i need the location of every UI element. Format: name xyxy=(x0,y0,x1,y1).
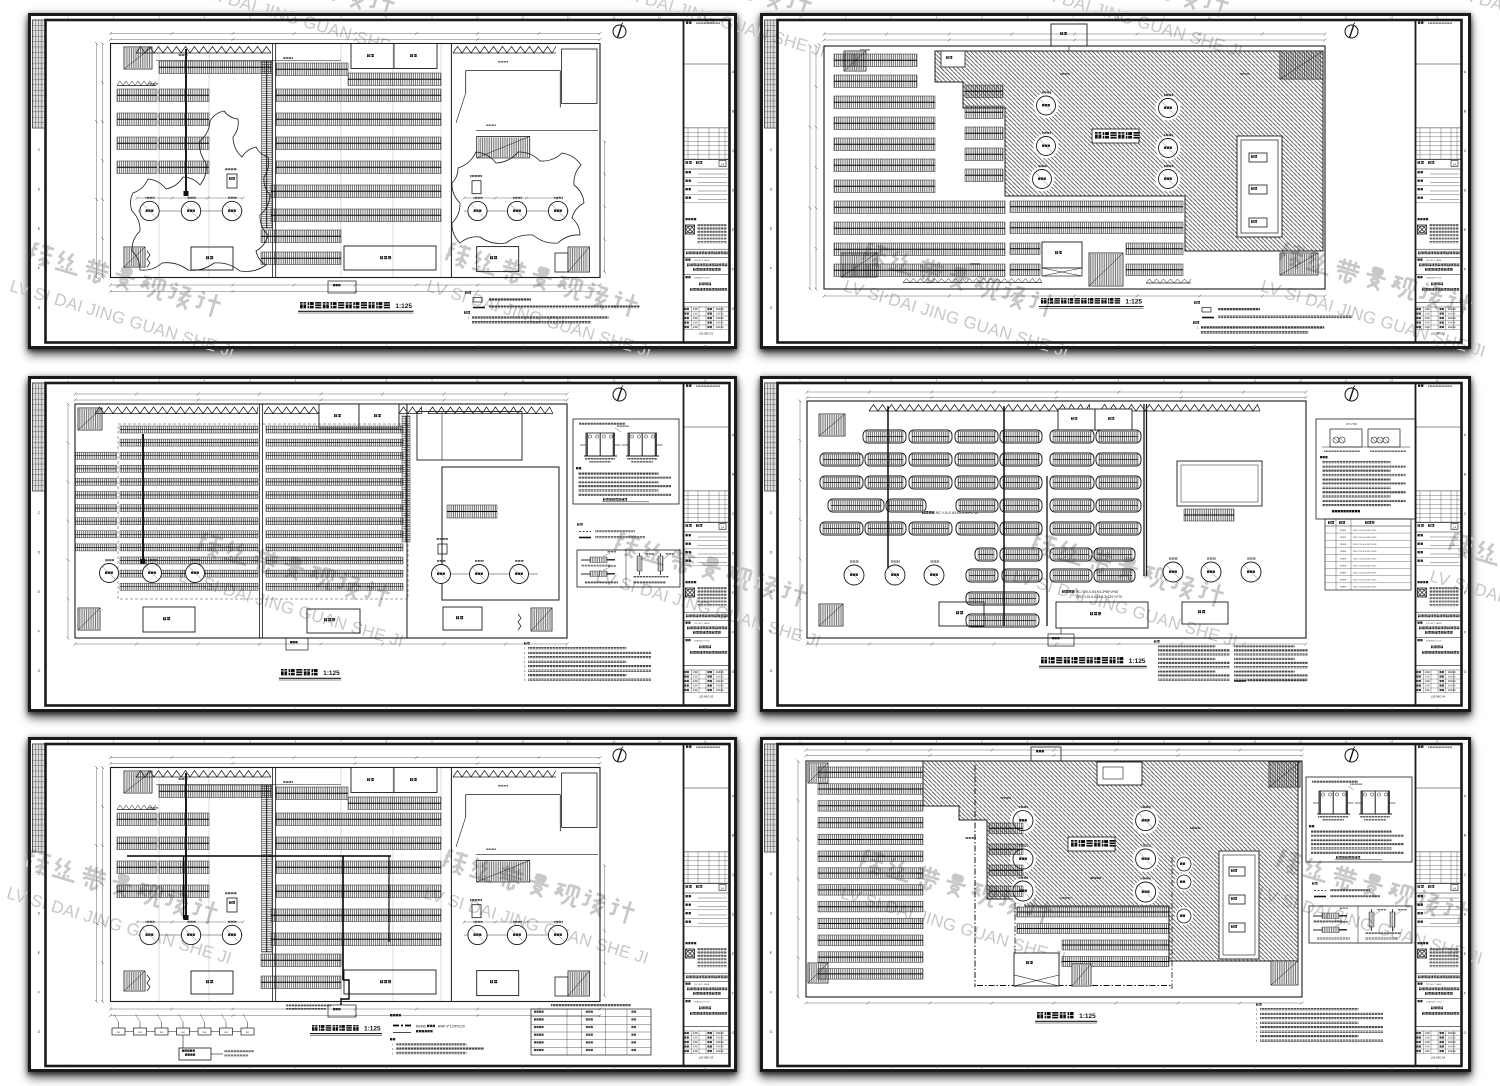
svg-text:G: G xyxy=(770,306,773,310)
svg-text:PROJECT NAME: PROJECT NAME xyxy=(1426,621,1442,624)
svg-text:G: G xyxy=(1464,670,1467,674)
svg-text:1WIR4: 1WIR4 xyxy=(1340,551,1347,553)
svg-text:A: A xyxy=(1464,433,1467,437)
svg-text:L20-NEC-03: L20-NEC-03 xyxy=(699,694,714,698)
svg-text:ZRC-YJV-0.6/1KV 5X16: ZRC-YJV-0.6/1KV 5X16 xyxy=(1353,529,1377,531)
svg-text:E: E xyxy=(1464,591,1467,595)
svg-text:C: C xyxy=(732,149,735,153)
svg-text:6: 6 xyxy=(524,671,526,673)
svg-text:1: 1 xyxy=(1197,326,1199,330)
svg-text:E: E xyxy=(1464,952,1467,956)
svg-text:E: E xyxy=(770,227,773,231)
svg-text:PROJECT NAME: PROJECT NAME xyxy=(694,259,710,262)
svg-text:1A: 1A xyxy=(721,525,725,529)
svg-text:DRAWING TITLE: DRAWING TITLE xyxy=(694,639,710,642)
svg-text:4: 4 xyxy=(524,662,526,664)
svg-text:D: D xyxy=(1464,189,1467,193)
svg-text:D: D xyxy=(1464,913,1467,917)
svg-text:B: B xyxy=(1464,834,1467,838)
svg-text:1: 1 xyxy=(392,1045,394,1047)
svg-text:1A: 1A xyxy=(721,162,725,166)
svg-text:1WIR2: 1WIR2 xyxy=(1340,537,1347,539)
svg-text:IN1: IN1 xyxy=(117,1032,121,1034)
svg-text:DRAWING TITLE: DRAWING TITLE xyxy=(1426,639,1442,642)
svg-text:IN3: IN3 xyxy=(160,1032,164,1034)
svg-text:1WIR9: 1WIR9 xyxy=(1340,586,1347,588)
svg-text:L20-NEC-02: L20-NEC-02 xyxy=(1431,332,1446,336)
svg-text:E: E xyxy=(1464,228,1467,232)
svg-text:1:125: 1:125 xyxy=(395,303,412,310)
svg-text:RC-YJV-0.6/1KV-3*95+2*50: RC-YJV-0.6/1KV-3*95+2*50 xyxy=(936,511,978,515)
svg-text:D: D xyxy=(770,188,773,192)
svg-text:4: 4 xyxy=(1256,1023,1258,1025)
svg-text:G: G xyxy=(38,306,41,310)
svg-text:C: C xyxy=(1464,512,1467,516)
svg-text:F: F xyxy=(770,267,773,271)
svg-text:G: G xyxy=(1464,307,1467,311)
svg-text:C: C xyxy=(1464,873,1467,877)
svg-text:ZRC-YJV-0.6/1KV 5X16: ZRC-YJV-0.6/1KV 5X16 xyxy=(1353,579,1377,581)
svg-text:IN4: IN4 xyxy=(181,1032,185,1034)
svg-text:1WIR1: 1WIR1 xyxy=(1340,529,1347,531)
svg-text:1:125: 1:125 xyxy=(364,1026,381,1033)
svg-text:ZRC-YJV-0.6/1KV 5X16: ZRC-YJV-0.6/1KV 5X16 xyxy=(1353,544,1377,546)
svg-text:PROJECT NAME: PROJECT NAME xyxy=(1426,259,1442,262)
svg-text:G: G xyxy=(38,669,41,673)
svg-text:F: F xyxy=(1464,268,1467,272)
svg-text:ZRC-YJV-0.6/1KV 5X16: ZRC-YJV-0.6/1KV 5X16 xyxy=(1353,586,1377,588)
svg-text:D: D xyxy=(1464,551,1467,555)
svg-text:F: F xyxy=(770,991,773,995)
svg-text:G: G xyxy=(732,307,735,311)
svg-text:A: A xyxy=(1464,70,1467,74)
svg-text:E: E xyxy=(38,951,41,955)
svg-text:7: 7 xyxy=(1256,1037,1258,1039)
svg-text:D: D xyxy=(732,551,735,555)
svg-text:D: D xyxy=(770,550,773,554)
svg-text:1WIR8: 1WIR8 xyxy=(1340,579,1347,581)
svg-text:E: E xyxy=(770,951,773,955)
svg-text:1WIR7: 1WIR7 xyxy=(1340,572,1347,574)
svg-text:3: 3 xyxy=(1256,1019,1258,1021)
svg-text:B: B xyxy=(1464,110,1467,114)
svg-text:IN5: IN5 xyxy=(203,1032,207,1034)
svg-text:RS485: RS485 xyxy=(416,1025,426,1029)
svg-text:6: 6 xyxy=(1256,1032,1258,1034)
svg-text:W=A*150: W=A*150 xyxy=(1346,422,1358,426)
svg-text:F: F xyxy=(38,267,41,271)
svg-text:DRAWING TITLE: DRAWING TITLE xyxy=(694,276,710,279)
svg-text:G: G xyxy=(38,1030,41,1034)
svg-text:F: F xyxy=(770,629,773,633)
svg-text:ZRC-YJV-0.6/1KV 5X16: ZRC-YJV-0.6/1KV 5X16 xyxy=(1353,537,1377,539)
svg-text:1A: 1A xyxy=(721,886,725,890)
svg-text:IN2: IN2 xyxy=(138,1032,142,1034)
svg-text:3: 3 xyxy=(524,657,526,659)
svg-text:1WIR6: 1WIR6 xyxy=(1340,565,1347,567)
svg-text:C: C xyxy=(38,511,41,515)
svg-text:DRAWING TITLE: DRAWING TITLE xyxy=(694,1000,710,1003)
svg-text:C: C xyxy=(770,511,773,515)
svg-text:PROJECT NAME: PROJECT NAME xyxy=(1426,983,1442,986)
svg-text:C: C xyxy=(38,148,41,152)
svg-text:A: A xyxy=(1464,794,1467,798)
svg-text:1:125: 1:125 xyxy=(323,670,340,677)
svg-text:8: 8 xyxy=(524,680,526,682)
svg-text:PROJECT NAME: PROJECT NAME xyxy=(694,983,710,986)
svg-text:2: 2 xyxy=(1256,1014,1258,1016)
svg-text:1: 1 xyxy=(1256,1010,1258,1012)
svg-text:PROJECT NAME: PROJECT NAME xyxy=(694,621,710,624)
svg-text:ZRC-YJV-0.6/1KV 5X16: ZRC-YJV-0.6/1KV 5X16 xyxy=(1353,551,1377,553)
svg-text:1A: 1A xyxy=(1453,162,1457,166)
svg-text:1: 1 xyxy=(524,648,526,650)
svg-text:1:125: 1:125 xyxy=(1129,658,1146,665)
svg-text:1A: 1A xyxy=(1453,886,1457,890)
svg-text:2: 2 xyxy=(524,653,526,655)
svg-text:C: C xyxy=(38,872,41,876)
svg-text:IN7: IN7 xyxy=(246,1032,250,1034)
svg-text:8: 8 xyxy=(1256,1041,1258,1043)
svg-text:C: C xyxy=(770,872,773,876)
svg-text:RWP-2*1.0/PVC20: RWP-2*1.0/PVC20 xyxy=(438,1025,465,1029)
svg-text:1:125: 1:125 xyxy=(1125,298,1142,305)
svg-text:D: D xyxy=(38,188,41,192)
svg-text:D: D xyxy=(770,912,773,916)
svg-text:ZRC-YJV-0.6/1KV 5X16: ZRC-YJV-0.6/1KV 5X16 xyxy=(1353,558,1377,560)
svg-text:F: F xyxy=(38,629,41,633)
svg-text:G: G xyxy=(770,669,773,673)
svg-text:IN6: IN6 xyxy=(224,1032,228,1034)
svg-text:1: 1 xyxy=(468,316,470,320)
svg-text:F: F xyxy=(1464,992,1467,996)
svg-text:F: F xyxy=(38,991,41,995)
svg-text:DRAWING TITLE: DRAWING TITLE xyxy=(1426,1000,1442,1003)
svg-text:L20-NEC-05: L20-NEC-05 xyxy=(699,1056,714,1060)
svg-text:G: G xyxy=(732,1031,735,1035)
svg-text:ZRC-YJV-0.6/1KV 5X16: ZRC-YJV-0.6/1KV 5X16 xyxy=(1353,572,1377,574)
svg-text:G: G xyxy=(732,670,735,674)
svg-text:E: E xyxy=(38,227,41,231)
svg-text:L20-NEC-01: L20-NEC-01 xyxy=(699,332,714,336)
svg-text:3: 3 xyxy=(392,1053,394,1055)
svg-text:L20-NEC-06: L20-NEC-06 xyxy=(1431,1056,1446,1060)
svg-text:G: G xyxy=(1464,1031,1467,1035)
svg-text:D: D xyxy=(38,550,41,554)
svg-text:D: D xyxy=(732,913,735,917)
svg-text:B: B xyxy=(1464,472,1467,476)
svg-text:1:125: 1:125 xyxy=(1079,1013,1096,1020)
svg-text:C: C xyxy=(770,148,773,152)
svg-text:5: 5 xyxy=(1256,1028,1258,1030)
svg-text:2: 2 xyxy=(392,1049,394,1051)
svg-text:E: E xyxy=(38,590,41,594)
svg-text:F: F xyxy=(1464,630,1467,634)
svg-text:E: E xyxy=(770,590,773,594)
svg-text:RC-YJV-0.6/1KV-3*95+2*50: RC-YJV-0.6/1KV-3*95+2*50 xyxy=(1076,590,1118,594)
svg-text:1WIR5: 1WIR5 xyxy=(1340,558,1347,560)
svg-text:G: G xyxy=(770,1030,773,1034)
svg-text:C: C xyxy=(1464,149,1467,153)
svg-text:L20-NEC-04: L20-NEC-04 xyxy=(1431,694,1446,698)
svg-text:ZRC-YJV-0.6/1KV-3*120+1*70: ZRC-YJV-0.6/1KV-3*120+1*70 xyxy=(1076,595,1122,599)
svg-text:DRAWING TITLE: DRAWING TITLE xyxy=(1426,276,1442,279)
svg-text:C: C xyxy=(732,512,735,516)
svg-text:ZRC-YJV-0.6/1KV 5X16: ZRC-YJV-0.6/1KV 5X16 xyxy=(1353,565,1377,567)
svg-text:C: C xyxy=(732,873,735,877)
svg-text:1WIR3: 1WIR3 xyxy=(1340,544,1347,546)
svg-text:7: 7 xyxy=(524,675,526,677)
svg-text:1A: 1A xyxy=(1453,525,1457,529)
svg-text:D: D xyxy=(38,912,41,916)
svg-text:D: D xyxy=(732,189,735,193)
svg-text:5: 5 xyxy=(524,666,526,668)
